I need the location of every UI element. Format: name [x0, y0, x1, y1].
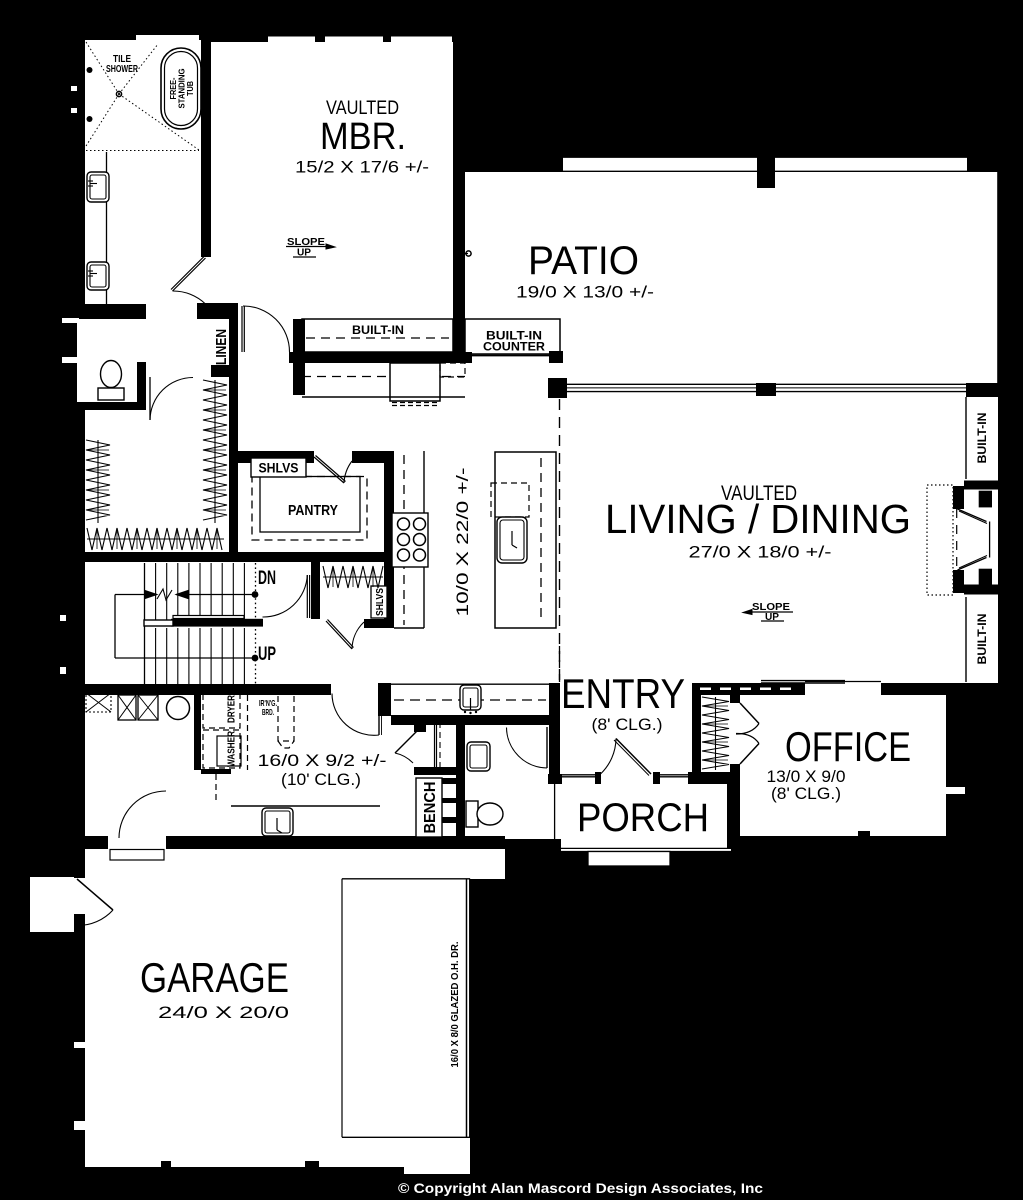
svg-text:DRYER: DRYER — [227, 694, 238, 723]
svg-text:WASHER: WASHER — [227, 730, 238, 767]
svg-text:OFFICE: OFFICE — [785, 723, 911, 770]
svg-text:SHLVS: SHLVS — [259, 461, 299, 476]
svg-text:LINEN: LINEN — [213, 329, 230, 365]
svg-text:(8' CLG.): (8' CLG.) — [771, 785, 841, 803]
svg-text:BUILT-IN: BUILT-IN — [975, 413, 989, 464]
svg-text:PATIO: PATIO — [528, 239, 639, 283]
svg-text:27/0 X 18/0 +/-: 27/0 X 18/0 +/- — [689, 544, 832, 562]
svg-text:19/0 X 13/0 +/-: 19/0 X 13/0 +/- — [516, 284, 654, 302]
svg-text:15/2 X 17/6 +/-: 15/2 X 17/6 +/- — [295, 159, 429, 177]
svg-text:TUB: TUB — [185, 81, 195, 96]
svg-text:DN: DN — [258, 568, 276, 589]
svg-text:© Copyright Alan Mascord Desig: © Copyright Alan Mascord Design Associat… — [398, 1181, 764, 1196]
svg-text:10/0 X 22/0 +/-: 10/0 X 22/0 +/- — [454, 468, 472, 617]
svg-text:16/0 X 8/0 GLAZED O.H. DR.: 16/0 X 8/0 GLAZED O.H. DR. — [450, 941, 461, 1067]
svg-text:LIVING / DINING: LIVING / DINING — [605, 496, 911, 542]
svg-text:24/0 X 20/0: 24/0 X 20/0 — [158, 1004, 289, 1022]
svg-text:MBR.: MBR. — [320, 116, 406, 158]
svg-text:13/0 X 9/0: 13/0 X 9/0 — [767, 768, 846, 786]
svg-text:COUNTER: COUNTER — [483, 340, 545, 354]
svg-text:SHLVS: SHLVS — [375, 588, 386, 616]
svg-text:PANTRY: PANTRY — [288, 503, 338, 519]
svg-text:ENTRY: ENTRY — [561, 670, 685, 717]
svg-text:SHOWER: SHOWER — [106, 64, 139, 75]
svg-text:BUILT-IN: BUILT-IN — [352, 323, 404, 337]
svg-text:16/0 X 9/2 +/-: 16/0 X 9/2 +/- — [258, 752, 387, 770]
svg-text:(10' CLG.): (10' CLG.) — [281, 771, 361, 789]
svg-text:PORCH: PORCH — [577, 796, 709, 840]
svg-text:(8' CLG.): (8' CLG.) — [592, 716, 663, 734]
svg-text:BUILT-IN: BUILT-IN — [975, 614, 989, 665]
svg-text:UP: UP — [258, 644, 276, 665]
svg-text:GARAGE: GARAGE — [140, 954, 289, 1001]
svg-text:BENCH: BENCH — [422, 782, 439, 834]
svg-text:BRD.: BRD. — [262, 707, 274, 717]
